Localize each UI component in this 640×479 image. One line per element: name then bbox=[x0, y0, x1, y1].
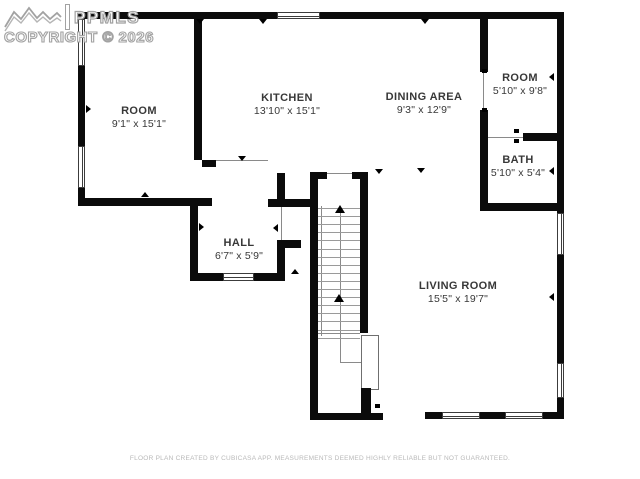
wall bbox=[480, 203, 557, 211]
door-tick bbox=[514, 139, 519, 143]
wall bbox=[194, 19, 202, 160]
wall bbox=[360, 172, 368, 333]
door-tick bbox=[259, 19, 267, 24]
stair-tread bbox=[318, 265, 360, 266]
window bbox=[557, 213, 564, 255]
wall bbox=[480, 19, 488, 72]
window bbox=[223, 273, 254, 281]
room-dimensions: 9'1" x 15'1" bbox=[112, 118, 166, 131]
window bbox=[505, 412, 543, 419]
room-name: HALL bbox=[215, 237, 263, 250]
room-dimensions: 5'10" x 5'4" bbox=[491, 167, 545, 180]
wall bbox=[202, 160, 216, 167]
wall bbox=[361, 388, 371, 413]
up-arrow-icon bbox=[334, 294, 344, 302]
floor-plan: PPMLS COPYRIGHT © 2026 ROOM 9'1" x 15'1"… bbox=[0, 0, 640, 479]
door-tick bbox=[482, 69, 487, 73]
room-label-bath: BATH 5'10" x 5'4" bbox=[491, 154, 545, 179]
wall bbox=[310, 172, 318, 420]
room-label-kitchen: KITCHEN 13'10" x 15'1" bbox=[254, 92, 320, 117]
under-stair-door bbox=[361, 335, 379, 390]
room-label-hall: HALL 6'7" x 5'9" bbox=[215, 237, 263, 262]
opening-line bbox=[327, 173, 352, 174]
door-tick bbox=[417, 168, 425, 173]
stair-tread bbox=[318, 257, 360, 258]
opening-line bbox=[488, 137, 523, 138]
room-label-top-right: ROOM 5'10" x 9'8" bbox=[493, 72, 547, 97]
room-name: LIVING ROOM bbox=[419, 280, 497, 293]
room-label-top-left: ROOM 9'1" x 15'1" bbox=[112, 105, 166, 130]
wall bbox=[523, 133, 557, 141]
door-tick bbox=[375, 169, 383, 174]
stair-tread bbox=[318, 305, 360, 306]
door-tick bbox=[273, 224, 278, 232]
watermark-divider bbox=[65, 4, 70, 30]
stair-tread bbox=[318, 330, 360, 331]
wall bbox=[268, 199, 313, 207]
up-arrow-icon bbox=[335, 205, 345, 213]
room-dimensions: 13'10" x 15'1" bbox=[254, 105, 320, 118]
stair-tread bbox=[318, 216, 360, 217]
wall bbox=[190, 198, 198, 281]
room-name: ROOM bbox=[493, 72, 547, 85]
stair-tread bbox=[318, 249, 360, 250]
room-name: BATH bbox=[491, 154, 545, 167]
room-label-dining: DINING AREA 9'3" x 12'9" bbox=[386, 91, 463, 116]
watermark: PPMLS COPYRIGHT © 2026 bbox=[4, 4, 154, 46]
door-tick bbox=[549, 73, 554, 81]
room-dimensions: 15'5" x 19'7" bbox=[419, 293, 497, 306]
room-name: DINING AREA bbox=[386, 91, 463, 104]
door-tick bbox=[482, 108, 487, 112]
window bbox=[277, 12, 320, 19]
room-dimensions: 6'7" x 5'9" bbox=[215, 250, 263, 263]
window bbox=[442, 412, 480, 419]
door-tick bbox=[141, 192, 149, 197]
wall bbox=[285, 240, 301, 248]
door-tick bbox=[549, 293, 554, 301]
door-tick bbox=[86, 105, 91, 113]
room-dimensions: 5'10" x 9'8" bbox=[493, 85, 547, 98]
opening-line bbox=[281, 207, 282, 240]
window bbox=[78, 146, 85, 188]
stair-tread bbox=[318, 273, 360, 274]
door-tick bbox=[196, 19, 204, 24]
watermark-copyright: COPYRIGHT © 2026 bbox=[4, 29, 154, 46]
door-tick bbox=[375, 404, 380, 408]
stair-tread bbox=[318, 281, 360, 282]
door-tick bbox=[238, 156, 246, 161]
wall bbox=[480, 133, 488, 211]
wall bbox=[310, 413, 383, 420]
stair-tread bbox=[318, 240, 360, 241]
stair-tread bbox=[318, 313, 360, 314]
opening-line bbox=[340, 212, 341, 363]
room-dimensions: 9'3" x 12'9" bbox=[386, 104, 463, 117]
door-tick bbox=[549, 167, 554, 175]
opening-line bbox=[483, 72, 484, 110]
stair-tread bbox=[318, 289, 360, 290]
stair-tread bbox=[318, 232, 360, 233]
door-tick bbox=[199, 223, 204, 231]
mountain-range-icon bbox=[4, 4, 62, 32]
window bbox=[557, 363, 564, 398]
door-tick bbox=[514, 129, 519, 133]
watermark-brand: PPMLS bbox=[74, 8, 140, 28]
opening-line bbox=[318, 333, 360, 334]
door-tick bbox=[291, 269, 299, 274]
opening-line bbox=[321, 206, 322, 336]
room-label-living: LIVING ROOM 15'5" x 19'7" bbox=[419, 280, 497, 305]
door-tick bbox=[421, 19, 429, 24]
wall bbox=[310, 172, 327, 179]
room-name: KITCHEN bbox=[254, 92, 320, 105]
stair-tread bbox=[318, 224, 360, 225]
wall bbox=[277, 240, 285, 281]
stair-tread bbox=[318, 338, 360, 339]
disclaimer-text: FLOOR PLAN CREATED BY CUBICASA APP. MEAS… bbox=[0, 455, 640, 462]
room-name: ROOM bbox=[112, 105, 166, 118]
stair-tread bbox=[318, 321, 360, 322]
